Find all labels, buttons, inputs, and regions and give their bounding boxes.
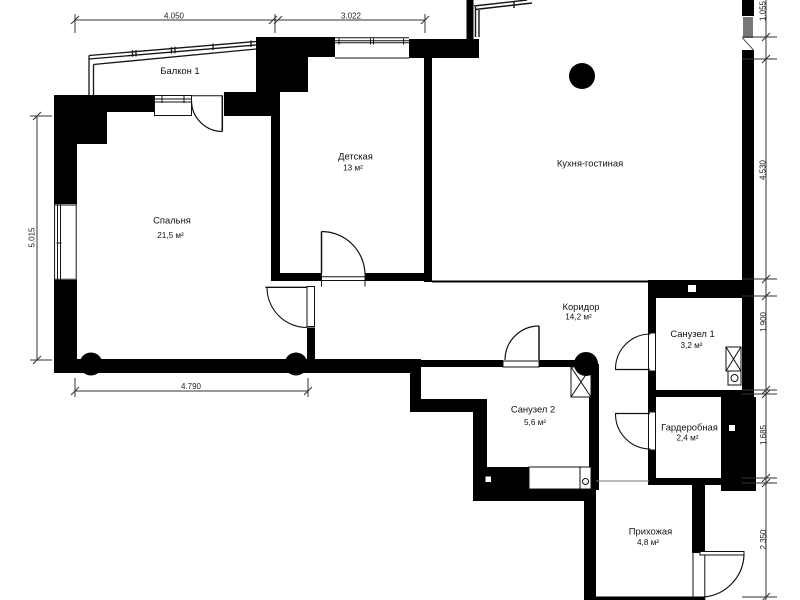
svg-text:Спальня: Спальня — [153, 215, 191, 226]
svg-text:Санузел 1: Санузел 1 — [670, 328, 714, 339]
svg-text:Кухня-гостиная: Кухня-гостиная — [557, 158, 623, 169]
svg-text:1.685: 1.685 — [759, 424, 768, 445]
svg-text:14,2 м²: 14,2 м² — [565, 313, 592, 322]
svg-text:4.530: 4.530 — [759, 159, 768, 180]
svg-text:2.350: 2.350 — [759, 529, 768, 550]
svg-text:21,5 м²: 21,5 м² — [157, 231, 184, 240]
svg-text:Балкон 1: Балкон 1 — [160, 65, 199, 76]
svg-text:Гардеробная: Гардеробная — [661, 422, 718, 433]
svg-text:Детская: Детская — [338, 151, 373, 162]
svg-text:Санузел 2: Санузел 2 — [511, 404, 555, 415]
svg-text:Коридор: Коридор — [562, 301, 599, 312]
svg-text:5,6 м²: 5,6 м² — [524, 418, 546, 427]
svg-text:4.050: 4.050 — [164, 12, 185, 21]
svg-text:4.790: 4.790 — [181, 382, 202, 391]
svg-text:1.900: 1.900 — [759, 311, 768, 332]
svg-text:5.015: 5.015 — [28, 227, 37, 248]
svg-text:3,2 м²: 3,2 м² — [680, 341, 702, 350]
svg-text:1.055: 1.055 — [759, 0, 768, 21]
svg-text:13 м²: 13 м² — [343, 164, 363, 173]
svg-text:2,4 м²: 2,4 м² — [676, 434, 698, 443]
svg-text:Прихожая: Прихожая — [629, 526, 672, 537]
svg-text:3.022: 3.022 — [341, 12, 362, 21]
svg-text:4,8 м²: 4,8 м² — [637, 538, 659, 547]
